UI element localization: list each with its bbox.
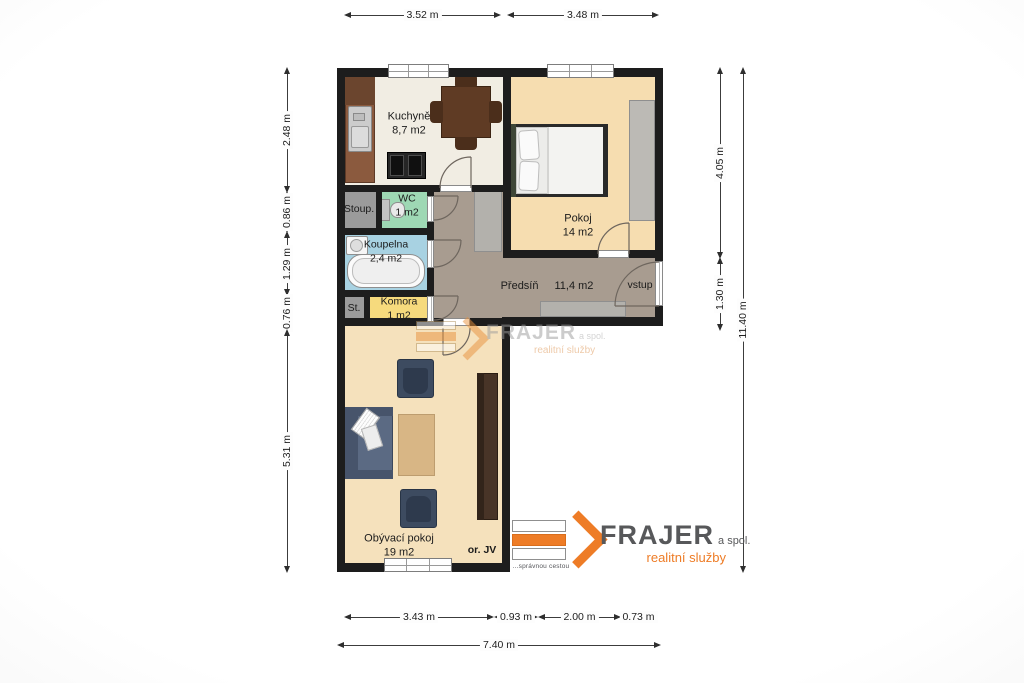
door-arc-wc bbox=[434, 196, 458, 220]
room-name-kuchyne: Kuchyně bbox=[388, 110, 431, 124]
room-label-komora: Komora 1 m2 bbox=[381, 295, 418, 322]
watermark-brand: FRAJER bbox=[486, 321, 576, 344]
room-label-kuchyne: Kuchyně 8,7 m2 bbox=[388, 110, 431, 139]
dim-bottom-total: 7.40 m bbox=[338, 639, 660, 651]
door-arc-koupelna bbox=[434, 240, 461, 267]
dim-top-2: 3.48 m bbox=[508, 9, 658, 21]
entrance-label: vstup bbox=[627, 279, 652, 293]
room-area-kuchyne: 8,7 m2 bbox=[388, 124, 431, 138]
company-logo: ...správnou cestou FRAJERa spol. realitn… bbox=[512, 514, 728, 578]
orientation-label: or. JV bbox=[468, 544, 497, 558]
dim-left-2: 0.86 m bbox=[281, 192, 293, 232]
room-label-pokoj: Pokoj 14 m2 bbox=[563, 212, 594, 241]
floorplan-page: FRAJERa spol. realitní služby Kuchyně 8,… bbox=[0, 0, 1024, 683]
logo-brand: FRAJER bbox=[600, 520, 714, 550]
dim-bottom-4: 0.73 m bbox=[622, 611, 655, 623]
dim-bottom-1: 3.43 m bbox=[345, 611, 493, 623]
dim-right-2: 1.30 m bbox=[714, 258, 726, 330]
entrance-label-text: vstup bbox=[627, 279, 652, 293]
room-name-obyvaci: Obývací pokoj bbox=[364, 532, 434, 546]
room-area-predsin: 11,4 m2 bbox=[554, 280, 593, 292]
dim-bottom-3: 2.00 m bbox=[539, 611, 620, 623]
room-name-predsin: Předsíň bbox=[501, 280, 539, 292]
room-label-stoup: Stoup. bbox=[344, 203, 374, 217]
room-area-obyvaci: 19 m2 bbox=[364, 546, 434, 560]
room-area-wc: 1 m2 bbox=[395, 206, 418, 220]
watermark-bar-top bbox=[416, 321, 456, 330]
room-name-pokoj: Pokoj bbox=[563, 212, 594, 226]
room-name-st: St. bbox=[348, 302, 361, 316]
door-arc-kitchen bbox=[440, 157, 471, 188]
room-name-stoup: Stoup. bbox=[344, 203, 374, 217]
watermark-logo: FRAJERa spol. realitní služby bbox=[416, 317, 612, 365]
room-label-obyvaci: Obývací pokoj 19 m2 bbox=[364, 532, 434, 561]
room-area-koupelna: 2,4 m2 bbox=[364, 252, 408, 266]
dim-right-1: 4.05 m bbox=[714, 68, 726, 258]
dim-bottom-2: 0.93 m bbox=[495, 611, 537, 623]
logo-tagline: realitní služby bbox=[647, 550, 726, 565]
dim-left-1: 2.48 m bbox=[281, 68, 293, 192]
room-label-predsin: Předsíň11,4 m2 bbox=[501, 279, 594, 293]
dim-left-4: 0.76 m bbox=[281, 295, 293, 330]
room-label-koupelna: Koupelna 2,4 m2 bbox=[364, 238, 408, 265]
watermark-suffix: a spol. bbox=[579, 331, 606, 341]
door-arc-pokoj bbox=[598, 223, 629, 254]
watermark-bar-bottom bbox=[416, 343, 456, 352]
dim-left-5: 5.31 m bbox=[281, 330, 293, 572]
room-name-komora: Komora bbox=[381, 295, 418, 309]
room-label-st: St. bbox=[348, 302, 361, 316]
logo-slogan: ...správnou cestou bbox=[512, 563, 570, 570]
dim-left-3: 1.29 m bbox=[281, 232, 293, 295]
logo-suffix: a spol. bbox=[718, 535, 750, 547]
orientation-label-text: or. JV bbox=[468, 544, 497, 558]
dim-right-total: 11.40 m bbox=[737, 68, 749, 572]
room-area-pokoj: 14 m2 bbox=[563, 226, 594, 240]
room-name-koupelna: Koupelna bbox=[364, 238, 408, 252]
room-area-komora: 1 m2 bbox=[381, 309, 418, 323]
room-label-wc: WC 1 m2 bbox=[395, 192, 418, 219]
watermark-tagline: realitní služby bbox=[534, 345, 595, 356]
dim-top-1: 3.52 m bbox=[345, 9, 500, 21]
room-name-wc: WC bbox=[395, 192, 418, 206]
logo-bar-bottom bbox=[512, 548, 566, 560]
